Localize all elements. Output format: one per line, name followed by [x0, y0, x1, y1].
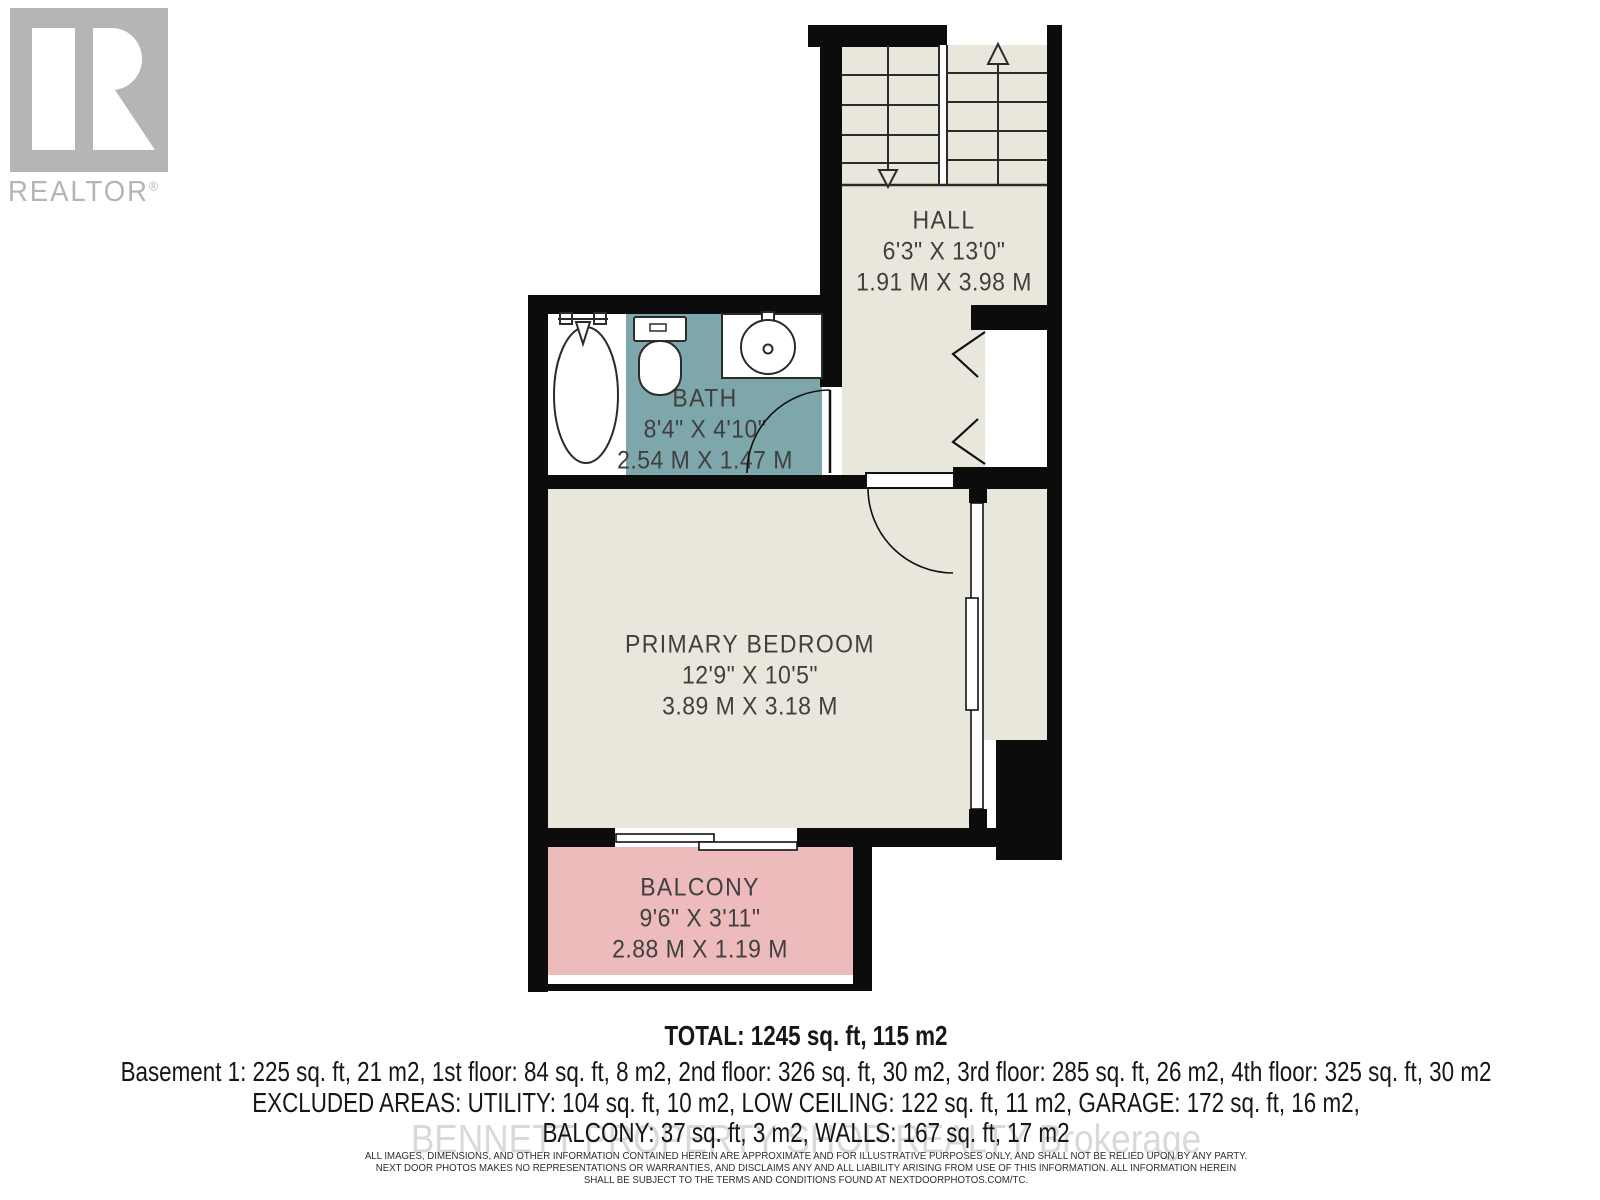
realtor-logo	[10, 8, 170, 178]
floor-areas-line: Basement 1: 225 sq. ft, 21 m2, 1st floor…	[121, 1056, 1492, 1088]
wall-segment	[996, 740, 1062, 860]
hall-label: HALL 6'3" X 13'0" 1.91 M X 3.98 M	[856, 206, 1032, 299]
disclaimer-line-3: SHALL BE SUBJECT TO THE TERMS AND CONDIT…	[584, 1174, 1028, 1186]
excluded-areas-line-2: BALCONY: 37 sq. ft, 3 m2, WALLS: 167 sq.…	[542, 1117, 1069, 1149]
wall-segment	[853, 828, 872, 991]
wall-segment	[528, 828, 615, 847]
total-area-line: TOTAL: 1245 sq. ft, 115 m2	[664, 1020, 947, 1052]
wall-segment	[969, 809, 987, 828]
wall-segment	[969, 487, 987, 503]
room-name: PRIMARY BEDROOM	[625, 630, 875, 661]
wall-segment	[528, 475, 868, 489]
room-name: BALCONY	[612, 873, 788, 904]
wall-segment	[1047, 25, 1062, 860]
logo-word: REALTOR	[8, 176, 149, 208]
side-passage-floor	[983, 489, 1047, 740]
room-dimensions-imperial: 6'3" X 13'0"	[856, 237, 1032, 268]
room-name: BATH	[617, 384, 793, 415]
wall-segment	[820, 25, 842, 387]
room-dimensions-metric: 2.54 M X 1.47 M	[617, 446, 793, 477]
room-dimensions-metric: 1.91 M X 3.98 M	[856, 268, 1032, 299]
balcony-label: BALCONY 9'6" X 3'11" 2.88 M X 1.19 M	[612, 873, 788, 966]
bath-label: BATH 8'4" X 4'10" 2.54 M X 1.47 M	[617, 384, 793, 477]
wall-segment	[971, 305, 1047, 330]
room-dimensions-imperial: 9'6" X 3'11"	[612, 904, 788, 935]
wall-segment	[528, 295, 842, 314]
wall-segment	[528, 295, 548, 992]
wall-segment	[953, 467, 1062, 489]
room-name: HALL	[856, 206, 1032, 237]
tub-alcove	[548, 314, 626, 475]
room-dimensions-metric: 3.89 M X 3.18 M	[625, 692, 875, 723]
room-dimensions-imperial: 8'4" X 4'10"	[617, 415, 793, 446]
disclaimer-line-1: ALL IMAGES, DIMENSIONS, AND OTHER INFORM…	[365, 1150, 1247, 1162]
registered-mark: ®	[149, 178, 160, 193]
balcony-railing	[548, 984, 853, 991]
excluded-areas-line-1: EXCLUDED AREAS: UTILITY: 104 sq. ft, 10 …	[252, 1087, 1360, 1119]
room-dimensions-imperial: 12'9" X 10'5"	[625, 661, 875, 692]
primary-bedroom-label: PRIMARY BEDROOM 12'9" X 10'5" 3.89 M X 3…	[625, 630, 875, 723]
realtor-logo-icon	[10, 8, 170, 178]
closet-opening	[985, 330, 1047, 467]
realtor-logo-wordmark: REALTOR®	[8, 176, 160, 209]
disclaimer-line-2: NEXT DOOR PHOTOS MAKES NO REPRESENTATION…	[376, 1162, 1236, 1174]
floor-plan-page: { "branding": { "logo_text": "REALTOR", …	[0, 0, 1600, 1200]
room-dimensions-metric: 2.88 M X 1.19 M	[612, 935, 788, 966]
